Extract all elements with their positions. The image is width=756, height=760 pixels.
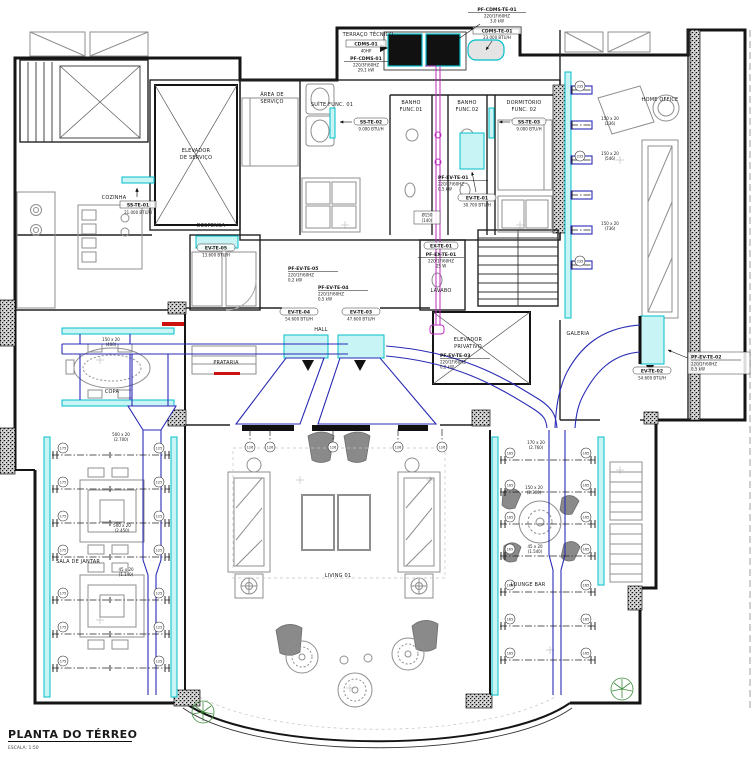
main-stairs (478, 230, 558, 306)
svg-text:(546): (546) (605, 156, 616, 161)
label-despensa: DESPENSA (197, 223, 226, 229)
svg-text:(400): (400) (106, 342, 117, 347)
callout-ss-te-01: SS-TE-01 (127, 203, 149, 209)
svg-text:47.600 BTU/H: 47.600 BTU/H (347, 317, 375, 322)
floor-plan-drawing: 175 125 165 165 126 (0, 0, 756, 760)
pantry-shelves (192, 252, 256, 310)
label-cozinha: COZINHA (102, 195, 127, 201)
callout-pf-ex-te-01: PF-EX-TE-01 (426, 252, 456, 258)
lounge-furniture (502, 462, 642, 582)
terrace-slabs (30, 32, 650, 56)
label-elev-servico: ELEVADOR (182, 148, 211, 154)
callout-pf-ev-te-04: PF-EV-TE-04 (318, 285, 348, 291)
svg-text:DE SERVIÇO: DE SERVIÇO (180, 155, 212, 161)
label-area-servico: ÁREA DE (260, 91, 283, 98)
svg-text:(1.140): (1.140) (119, 572, 134, 577)
svg-text:(2.700): (2.700) (114, 437, 129, 442)
svg-text:(736): (736) (605, 226, 616, 231)
svg-text:FUNC.01: FUNC.01 (399, 107, 422, 113)
svg-text:(236): (236) (605, 121, 616, 126)
svg-text:9.000 BTU/H: 9.000 BTU/H (516, 127, 541, 132)
dining-branches (52, 443, 170, 672)
label-copa: COPA (105, 389, 120, 395)
callout-ev-te-04: EV-TE-04 (288, 310, 310, 316)
svg-text:235: 235 (577, 154, 583, 158)
svg-text:3,0 kW: 3,0 kW (490, 19, 504, 24)
callout-pf-cdms-te-01: PF-CDMS-TE-01 (477, 7, 516, 13)
sheet-title: PLANTA DO TÉRREO (8, 728, 137, 741)
svg-text:235: 235 (577, 84, 583, 88)
label-lounge-bar: LOUNGE BAR (511, 582, 546, 588)
sheet-scale: ESCALA: 1:50 (8, 745, 39, 751)
svg-text:(2.300): (2.300) (527, 490, 542, 495)
label-galeria: GALERIA (566, 331, 589, 337)
svg-text:0,2 kW: 0,2 kW (440, 365, 454, 370)
label-living: LIVING 01 (325, 573, 352, 579)
callout-pf-ev-te-01: PF-EV-TE-01 (438, 175, 468, 181)
label-banho2: BANHO (457, 100, 476, 106)
svg-text:23.000 BTU/H: 23.000 BTU/H (483, 35, 511, 40)
svg-text:29,1 kW: 29,1 kW (358, 68, 374, 73)
label-terraco: TERRAÇO TÉCNICO (342, 30, 394, 38)
svg-text:13.600 BTU/H: 13.600 BTU/H (202, 253, 230, 258)
svg-text:PRIVATIVO: PRIVATIVO (454, 344, 482, 350)
callout-pf-ev-te-03: PF-EV-TE-03 (440, 353, 470, 359)
floor-plan-sheet: 175 125 165 165 126 (0, 0, 756, 760)
callout-ex-te-01: EX-TE-01 (430, 244, 452, 250)
svg-text:FUNC. 02: FUNC. 02 (512, 107, 537, 113)
callout-ev-te-01: EV-TE-01 (466, 196, 488, 202)
svg-text:25 W: 25 W (436, 264, 446, 269)
label-home-office: HOME OFFICE (642, 97, 679, 103)
label-dorm2: DORMITÓRIO (507, 99, 542, 106)
svg-text:0,5 kW: 0,5 kW (438, 187, 452, 192)
svg-text:(140): (140) (422, 218, 433, 223)
svg-text:54.600 BTU/H: 54.600 BTU/H (285, 317, 313, 322)
callout-ev-te-02: EV-TE-02 (641, 369, 663, 375)
svg-text:30.700 BTU/H: 30.700 BTU/H (463, 203, 491, 208)
callout-cdms-01: CDMS-01 (354, 42, 377, 48)
svg-text:FUNC.02: FUNC.02 (455, 107, 478, 113)
svg-text:0,5 kW: 0,5 kW (318, 297, 332, 302)
svg-text:0,5 kW: 0,5 kW (691, 367, 705, 372)
callout-cdms-te-01: CDMS-TE-01 (482, 29, 513, 35)
label-elev-priv: ELEVADOR (454, 337, 483, 343)
callout-ev-te-03: EV-TE-03 (350, 310, 372, 316)
living-furniture (228, 432, 445, 655)
label-sala-jantar: SALA DE JANTAR (56, 559, 100, 565)
palm-planters (192, 678, 633, 723)
svg-text:9.000 BTU/H: 9.000 BTU/H (358, 127, 383, 132)
svg-text:(1.540): (1.540) (528, 549, 543, 554)
callout-ss-te-02: SS-TE-02 (360, 120, 382, 126)
indoor-units (122, 108, 664, 364)
svg-text:0,2 kW: 0,2 kW (288, 278, 302, 283)
service-stairs (28, 62, 140, 142)
label-suite-func: SUÍTE FUNC. 01 (311, 101, 353, 108)
svg-text:21.000 BTU/H: 21.000 BTU/H (124, 210, 152, 215)
title-block: PLANTA DO TÉRREO ESCALA: 1:50 (8, 728, 137, 751)
label-lavabo: LAVABO (431, 288, 452, 294)
svg-text:40HP: 40HP (361, 49, 372, 54)
callout-ev-te-05: EV-TE-05 (205, 246, 227, 252)
svg-text:(2.450): (2.450) (115, 528, 130, 533)
duct-label-exhaust: Ø150 (422, 213, 433, 218)
callout-pf-ev-te-02: PF-EV-TE-02 (691, 355, 721, 361)
label-banho1: BANHO (401, 100, 420, 106)
staff-bedroom-furniture (498, 120, 552, 232)
callout-pf-cdms-01: PF-CDMS-01 (350, 56, 382, 62)
curved-balcony (183, 697, 572, 748)
svg-text:SERVIÇO: SERVIÇO (260, 99, 283, 105)
callout-ss-te-03: SS-TE-03 (518, 120, 540, 126)
label-hall: HALL (314, 327, 328, 333)
svg-text:(2.760): (2.760) (529, 445, 544, 450)
lounge-branches (500, 448, 596, 664)
label-prataria: PRATARIA (213, 360, 239, 366)
svg-text:54.600 BTU/H: 54.600 BTU/H (638, 376, 666, 381)
callout-pf-ev-te-05: PF-EV-TE-05 (288, 266, 318, 272)
svg-text:235: 235 (577, 259, 583, 263)
staff-suite-furniture (242, 98, 360, 232)
bay-planters (192, 638, 633, 723)
